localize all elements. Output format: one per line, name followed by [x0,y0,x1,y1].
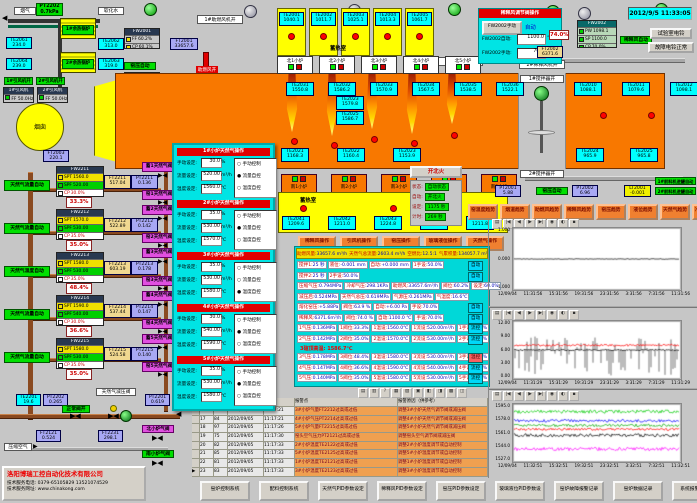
mode-label: 自动 [525,23,536,31]
junction-dot [416,33,423,40]
gas-ft-box: FT2212522.89 [104,218,131,232]
gas-ft-box: FT2211517.04 [104,175,131,189]
valve-icon[interactable]: ▶◀ [70,412,81,420]
junction-dot [384,33,391,40]
grid-row: 压缩气压:0.794MPa冷却气压:298.1KPa助燃风:33657.6m³/… [297,282,501,290]
south-port-valve-label: 南小炉气阀 [142,450,174,458]
crown-high-temp-alarm: 3碹顶高温: 1586.7℃ [300,345,353,352]
radio-manual-control[interactable]: ○ 手动控制 [237,161,261,167]
chart2-toolbar: ▤|◀◀▶▶|◉◐▪ [492,310,579,320]
mid-temps-col: TE20231579.8TE20251586.7 [336,96,364,125]
trend-button[interactable]: 助燃风趋势 [532,204,562,220]
temp-set-label: 温度设定: [177,186,197,192]
junction-dot [352,33,359,40]
toolbar-icon[interactable]: ▶ [525,310,535,320]
valve-icon[interactable]: ▶◀ [158,344,167,351]
gas-reducer-label: 天然气减压阀 [96,388,136,396]
toolbar-icon[interactable]: ◐ [558,310,568,320]
stirrer-shaft [540,101,543,153]
alarm-point-header: 报警点 [295,398,398,407]
unit-label: % [221,160,225,165]
bottom-temps-row2: TE2024965.9TE2025965.8 [576,148,658,162]
radio-flow-auto[interactable]: ● 流量自控 [237,225,261,231]
junction-dot [600,112,607,119]
trend-button[interactable]: 冷却气趋势 [692,204,697,220]
temp-set-label: 温度设定: [177,238,197,244]
system-nav-button[interactable]: 玻璃液位PID参数设定 [495,481,545,501]
ft2003-box: FT2003220.1 [43,150,69,162]
temp-set-label: 温度设定: [177,342,197,348]
unit-label: m³/h [221,225,232,230]
chart2-xticks: 12/09/0411:31:2915:31:2919:31:2923:31:29… [498,380,690,385]
scada-screen: ◀ 烟气 PT22020.7kPa 软化水 1#余热锅炉 2#余热锅炉 TE20… [0,0,697,503]
manual-set-label: 手动设定: [177,368,197,374]
ft2002-box: FT20026371.6 [537,46,563,58]
flow-set-label: 流量设定: [177,381,197,387]
south-ports-row: 南1小炉南2小炉南3小炉南4小炉南5小炉 [281,174,517,193]
gas-valve-position: 35.0% [66,369,92,380]
valve-actuator-icon [110,405,117,412]
temp-set-input[interactable]: 1560.0 [201,184,222,194]
fw2001-top-panel: FW2001 FF 60.2%CP 60.1% [124,28,160,49]
mode-chip[interactable]: 自动 [468,303,483,313]
fan1-panel: 1#引风机 FF 50.0Hz [3,87,34,103]
flow-set-input[interactable]: 530.00 [201,223,222,233]
mode-chip[interactable]: 流控 [468,335,483,345]
north-ports-row: 北1小炉北2小炉北3小炉北4小炉北5小炉 [277,56,481,74]
grid-row: 1气压:0.136MPa1阀位:33.3%1温设:1560.0℃1流设:520.… [297,324,489,332]
manual-set-label: 手动设定: [177,160,197,166]
unit-label: m³/h [221,381,232,386]
trend-button[interactable]: 窑压趋势 [596,204,626,220]
flow-set-label: 流量设定: [177,277,197,283]
chart1-xticks: 12/09/0411:31:5615:31:5619:31:5623:31:56… [498,291,690,296]
te2063-box: TE2063319.0 [98,58,124,70]
temp-set-input[interactable]: 1590.0 [201,340,222,350]
flow-set-input[interactable]: 530.00 [201,379,222,389]
junction-dot [371,136,378,143]
temp-set-input[interactable]: 1580.0 [201,288,222,298]
unit-label: % [221,212,225,217]
system-nav-button[interactable]: 稀释风PID参数设定 [377,481,427,501]
alarm-row[interactable]: 2082 2012/09/0511:17:33 2#小炉温度TE2122过高或过… [192,442,488,451]
stirrer-motor-icon [534,86,549,101]
manual-set-input[interactable]: 35.0 [201,262,222,272]
gas-pt-box: PT22130.178 [131,261,158,275]
radio-temp-auto[interactable]: ● 温度自控 [237,289,261,295]
toolbar-icon[interactable]: ▧ [402,388,412,398]
mode-chip[interactable]: 流控 [468,324,483,334]
popup-section-title: 3#小炉天然气操作 [177,252,270,260]
chart2-yticks: 12.009.006.003.000.00 [486,320,510,378]
trend-button[interactable]: 烟道趋势 [500,204,530,220]
dilution-valve-position: 74.0% [549,30,569,40]
auto-sp-input[interactable]: 1100.0 [517,34,546,45]
ft2001-box: FT200133657.6 [170,38,198,50]
grid-row: 2气压:0.142MPa2阀位:35.0%2温设:1570.0℃2流设:530.… [297,335,489,343]
fan1-on-label: 1#引风机开 [4,77,33,85]
toolbar-icon[interactable]: ▩ [446,388,456,398]
alarm-row[interactable]: 2281 2012/09/0511:17:33 1#小炉温度TE2121过高或过… [192,459,488,468]
gas-fw-panel: FW2213 SPT 1580.0 SPF 530.00 CP 35.0% [56,252,104,283]
regen-gas-valve-label: 蓄5天然气阀 [142,334,176,344]
unit-label: % [221,264,225,269]
valve-icon[interactable]: ▶◀ [152,434,163,442]
unit-label: ℃ [221,238,226,243]
crown-temps-row: TE20311550.8TE20321586.2TE20331570.9TE20… [286,82,524,96]
system-nav-button[interactable]: 窑炉控制系统 [200,481,250,501]
te2201-box: TE220119.6 [16,394,41,406]
toolbar-icon[interactable]: ▣ [413,388,423,398]
alarm-table: 1698 2012/09/0511:17:21 3#小炉气量FT2212过高或过… [192,407,488,477]
pt2202-box: PT22020.7kPa [36,3,63,16]
radio-flow-auto[interactable]: ○ 流量自控 [237,277,261,283]
alarm-toolbar: ▤▥?▦▧▣◧◨▩◫ [358,388,467,398]
regen-label: 蓄热室 [330,44,346,52]
divider [489,306,697,308]
unit-label: ℃ [221,290,226,295]
gas-valve-position: 35.0% [66,240,92,251]
gas-fw-panel: FW2214 SPT 1590.0 SPF 540.00 CP 30.0% [56,295,104,326]
ft2231-box: FT2231298.1 [98,430,123,442]
valve-icon[interactable]: ▶◀ [108,412,119,420]
unit-label: ℃ [221,342,226,347]
toolbar-icon[interactable]: ◀ [514,310,524,320]
gas-fw-panel: FW2212 SPT 1570.0 SPF 530.00 CP 35.0% [56,209,104,240]
manual-set-input[interactable]: 30.0 [201,314,222,324]
manual-set-input[interactable]: 35.0 [201,366,222,376]
fan-icon [578,7,591,20]
company-name: 洛阳博瑞工控自动化技术有限公司 [7,469,141,478]
grid-row: 稀释风:6371.6m³/h阀位:74.0 %自动:1100.0 ℃手设:70.… [297,314,444,322]
manual-sp-label: FW2002手动: [482,50,512,56]
gas-valve-position: 36.6% [66,326,92,337]
auto-sp-label: FW2002自动: [482,36,512,42]
stirrer-disc [528,130,555,135]
panel-title: 稀释风调节阀操作 [479,9,561,18]
popup-section: 3#小炉天然气操作 手动设定: 35.0 % 流量设定: 530.00 m³/h… [174,251,273,303]
radio-flow-auto[interactable]: ● 流量自控 [237,329,261,335]
fan-icon [244,5,257,18]
manual-set-label: 手动设定: [177,264,197,270]
north-port-valve-label: 北小炉气阀 [142,425,174,433]
manual-set-input[interactable]: 35.0 [201,210,222,220]
fire-status-panel: 状态:自动状态自动:开北火设定:1175 秒计时:269 秒 [410,180,462,226]
alarm-row[interactable]: 1784 2012/09/0511:17:21 4#小炉气压PT2214过高或过… [192,416,488,425]
company-web: 技术服务网址: www.chinakong.com [7,486,141,492]
valve-icon[interactable]: ▶◀ [158,172,167,179]
regen-gas-valve-label: 蓄2天然气阀 [142,205,176,215]
gas-valve-position: 48.4% [66,283,92,294]
grid-row: 4气压:0.147MPa4阀位:36.6%4温设:1590.0℃4流设:540.… [297,364,489,372]
grid-row: 搅拌1:25 秒液位:-0.001 mm自动:+0.000 mm1手设:50.0… [297,261,444,269]
junction-dot [300,205,307,212]
radio-temp-auto[interactable]: ○ 温度自控 [237,341,261,347]
toolbar-icon[interactable]: ◧ [424,388,434,398]
pt2002-box: PT20026.96 [572,185,598,197]
alarm-row[interactable]: 1897 2012/09/0511:17:26 5#小炉气量FT2215过高或过… [192,424,488,433]
radio-flow-auto[interactable]: ● 流量自控 [237,173,261,179]
gas-auto-label: 天然气流量自动 [4,352,50,363]
radio-flow-auto[interactable]: ● 流量自控 [237,381,261,387]
toolbar-icon[interactable]: |◀ [503,391,513,401]
grid-row: 熔化窑压:+5.88Pa阀位:63.9 %自动:+6.00 Pa手设:70.0% [297,303,439,311]
gas-loops: 天然气流量自动 FW2211 SPT 1560.0 SPF 520.00 CP … [0,166,176,381]
divider [489,388,697,390]
junction-dot [288,33,295,40]
alarm-row[interactable]: ▶2383 2012/09/0511:17:33 3#小炉温度TE2123过高或… [192,468,488,477]
radio-manual-control[interactable]: ○ 手动控制 [237,213,261,219]
manual-set-label: 手动设定: [177,212,197,218]
chimney: 烟囱 [16,103,64,151]
gas-auto-label: 天然气流量自动 [4,309,50,320]
junction-dot [411,140,418,147]
te2061-box: TE2061234.0 [6,37,32,49]
lab-bell-button[interactable]: 试验室电铃 [650,28,692,39]
manual-set-input[interactable]: 30.0 [201,158,222,168]
gas-auto-label: 天然气流量自动 [4,223,50,234]
kiln-auto-label: 窑压自动 [124,62,156,70]
toolbar-icon[interactable]: ◉ [547,391,557,401]
arrow-left-icon: ◀ [176,410,181,418]
trend-button[interactable]: 稀释风趋势 [564,204,594,220]
fw2002-panel: FW2002 PW 1098.1SP 1100.0CP 70.0% [577,20,617,48]
toolbar-icon[interactable]: ▶| [536,310,546,320]
regen-gas-valve-label: 蓄3天然气阀 [142,248,176,258]
toolbar-icon[interactable]: ◀ [514,391,524,401]
manual-set-label: 手动设定: [177,316,197,322]
gas-pt-box: PT22110.136 [131,175,158,189]
junction-dot [451,132,458,139]
gas-auto-label: 天然气流量自动 [4,180,50,191]
fault-bell-button[interactable]: 故障电铃正常 [648,42,694,53]
gas-fw-panel: FW2211 SPT 1560.0 SPF 520.00 CP 30.0% [56,166,104,197]
toolbar-icon[interactable]: ▤ [492,310,502,320]
toolbar-icon[interactable]: ▪ [569,310,579,320]
junction-dot [331,142,338,149]
radio-manual-control[interactable]: ○ 手动控制 [237,369,261,375]
compressed-air-label: 压缩空气 [4,443,32,451]
pressure-trend-chart[interactable] [512,320,682,380]
toolbar-icon[interactable]: ▤ [492,391,502,401]
grid-row: 5气压:0.140MPa5阀位:35.0%5温设:1580.0℃5流设:530.… [297,374,489,382]
fire-north-button[interactable]: 开北火 [410,166,462,178]
bottom-temps-row: TE20211168.3TE20221160.4TE20231153.9 [281,148,421,162]
arrow-right-icon: ▶ [33,443,38,450]
popup-section-title: 1#小炉天然气操作 [177,148,270,156]
grid-row: 减压后:0.524MPa天然气总压:0.619MPa气源压:0.261MPa气温… [297,293,469,301]
mode-chip[interactable]: 自动 [468,272,483,282]
system-nav-button[interactable]: 系统报警值设定 [672,481,697,501]
alarm-row[interactable]: 2185 2012/09/0511:17:33 5#小炉温度TE2125过高或过… [192,450,488,459]
flow-set-input[interactable]: 520.00 [201,171,222,181]
temp-set-label: 温度设定: [177,290,197,296]
unit-label: ℃ [221,186,226,191]
soft-water-label: 软化水 [98,7,124,15]
toolbar-icon[interactable]: ▥ [369,388,379,398]
gas-ft-box: FT2214537.44 [104,304,131,318]
system-nav-button[interactable]: 窑炉故障报警记录 [554,481,604,501]
arrow-left-icon: ◀ [2,14,7,22]
lt2001-box: LT2001-0.001 [624,185,651,197]
fan2-panel: 2#引风机 FF 50.0Hz [37,87,68,103]
temperature-trend-chart[interactable] [512,403,682,463]
radio-temp-auto[interactable]: ○ 温度自控 [237,185,261,191]
popup-section: 5#小炉天然气操作 手动设定: 35.0 % 流量设定: 530.00 m³/h… [174,355,273,407]
trend-button[interactable]: 天然气趋势 [660,204,690,220]
trend-button[interactable]: 窑温度趋势 [468,204,498,220]
junction-dot [320,33,327,40]
junction-dot [291,138,298,145]
grid-row: 3气压:0.178MPa3阀位:48.4%3温设:1580.0℃3流设:530.… [297,353,489,361]
flow-set-label: 流量设定: [177,173,197,179]
boiler-2: 2#余热锅炉 [60,52,96,73]
unit-label: m³/h [221,277,232,282]
popup-section-title: 5#小炉天然气操作 [177,356,270,364]
mode-chip[interactable]: 自动 [468,261,483,271]
unit-label: % [221,316,225,321]
totals-banner: 助燃风量:33657.6 m³/h天然气总流量:2603.4 m³/h空燃比:1… [296,248,488,259]
chart3-xticks: 12/09/0411:32:5115:32:5119:32:5123:32:51… [498,463,690,468]
toolbar-icon[interactable]: ▶| [536,391,546,401]
popup-section: 2#小炉天然气操作 手动设定: 35.0 % 流量设定: 530.00 m³/h… [174,199,273,251]
temp-set-label: 温度设定: [177,394,197,400]
south-regen-label: 蓄热室 [300,196,316,204]
toolbar-icon[interactable]: ◉ [547,310,557,320]
alarm-row[interactable]: 1975 2012/09/0511:17:30 窑头空气压力PT2121过高或过… [192,433,488,442]
right-temps-row: TE20101088.1TE20111079.6TE20121098.1 [574,82,697,96]
feeder2-auto-label: 2#前料机进罐自动 [655,187,696,195]
system-nav-button[interactable]: 配料控制系统 [259,481,309,501]
motor-icon [120,410,132,422]
popup-section-title: 4#小炉天然气操作 [177,304,270,312]
fan-icon [448,3,461,16]
radio-manual-control[interactable]: ○ 手动控制 [237,265,261,271]
fw2002-manual-button[interactable]: FW2002手动 [482,21,522,35]
gas-fw-panel: FW2215 SPT 1580.0 SPF 530.00 CP 35.0% [56,338,104,369]
te2062-box: TE2062313.0 [98,38,124,50]
feeder1-auto-label: 1#前料机进罐自动 [655,177,696,185]
datetime-display: 2012/9/5 11:33:05 [628,7,692,20]
radio-temp-auto[interactable]: ○ 温度自控 [237,393,261,399]
valve-icon[interactable]: ▶◀ [158,301,167,308]
system-nav-button[interactable]: 窑炉数据记录 [613,481,663,501]
toolbar-icon[interactable]: ▶ [525,391,535,401]
chart1-yticks: 1.0000.000-1.000 [486,227,510,289]
comb-fan-on-label: 1#助燃风机开 [197,15,243,24]
temp-set-input[interactable]: 1580.0 [201,392,222,402]
pt2001-box: PT20015.88 [495,185,521,197]
mixer1-on-label: 1#搅拌器开 [520,75,564,83]
flow-set-label: 流量设定: [177,225,197,231]
toolbar-icon[interactable]: ◨ [435,388,445,398]
fan2-on-label: 2#引风机开 [36,77,65,85]
ft2121-box: FT21210.524 [36,430,61,442]
unit-label: m³/h [221,173,232,178]
valve-icon[interactable]: ▶◀ [158,371,167,378]
junction-dot [390,205,397,212]
valve-icon[interactable]: ▶◀ [158,258,167,265]
toolbar-icon[interactable]: ◐ [558,391,568,401]
toolbar-icon[interactable]: ◫ [457,388,467,398]
unit-label: % [221,368,225,373]
radio-temp-auto[interactable]: ○ 温度自控 [237,237,261,243]
toolbar-icon[interactable]: ? [380,388,390,398]
gas-operation-popup: 1#小炉天然气操作 手动设定: 30.0 % 流量设定: 520.00 m³/h… [172,143,275,411]
unit-label: ℃ [221,394,226,399]
trend-button[interactable]: 液位趋势 [628,204,658,220]
mixer2-on-label: 2#搅拌器开 [520,170,564,178]
toolbar-icon[interactable]: |◀ [503,310,513,320]
chart3-toolbar: ▤|◀◀▶▶|◉◐▪ [492,391,579,401]
temp-set-input[interactable]: 1570.0 [201,236,222,246]
flow-set-input[interactable]: 540.00 [201,327,222,337]
boiler-1: 1#余热锅炉 [60,18,96,39]
popup-section: 1#小炉天然气操作 手动设定: 30.0 % 流量设定: 520.00 m³/h… [174,147,273,199]
te2064-box: TE2064239.0 [6,58,32,70]
gas-pt-box: PT22140.147 [131,304,158,318]
regen-gas-valve-label: 蓄4天然气阀 [142,291,176,301]
south-regen-temps: TE20411209.6TE20421211.0TE20431224.8TE20… [282,216,494,230]
radio-manual-control[interactable]: ○ 手动控制 [237,317,261,323]
gas-main-pipe [0,414,180,419]
gas-valve-position: 33.3% [66,197,92,208]
unit-label: m³/h [221,329,232,334]
popup-section: 4#小炉天然气操作 手动设定: 30.0 % 流量设定: 540.00 m³/h… [174,303,273,355]
flue-gas-label: 烟气 [14,7,36,15]
regen-gas-valve-label: 蓄1天然气阀 [142,162,176,172]
fan-icon [144,3,157,16]
mode-chip[interactable]: 自动 [468,314,483,324]
flow-set-label: 流量设定: [177,329,197,335]
company-info: 洛阳博瑞工控自动化技术有限公司 技术服务电话: 0379-65105829 13… [2,466,146,501]
toolbar-icon[interactable]: ▦ [391,388,401,398]
popup-section-title: 2#小炉天然气操作 [177,200,270,208]
toolbar-icon[interactable]: ▪ [569,391,579,401]
junction-dot [648,112,655,119]
gas-ft-box: FT2215524.58 [104,347,131,361]
system-nav-button[interactable]: 天然气PID参数设定 [318,481,368,501]
valve-icon[interactable]: ▶◀ [152,459,163,467]
grid-row: 搅拌2:25 秒2手设:50.0% [297,272,360,280]
north-regen-row: TE20011040.1 TE20021011.7 TE20031025.1 T… [277,8,434,56]
gas-ft-box: FT2213603.19 [104,261,131,275]
system-nav-button[interactable]: 窑压PID参数设定 [436,481,486,501]
gas-pt-box: PT22150.140 [131,347,158,361]
bottom-buttons-row: 窑炉控制系统配料控制系统天然气PID参数设定稀释风PID参数设定窑压PID参数设… [200,481,697,501]
mode-chip[interactable]: 温控 [468,353,483,363]
toolbar-icon[interactable]: ▤ [358,388,368,398]
mode-chip[interactable]: 流控 [468,364,483,374]
gas-auto-label: 天然气温度自动 [4,266,50,277]
trend-buttons-row: 窑温度趋势烟道趋势助燃风趋势稀释风趋势窑压趋势液位趋势天然气趋势冷却气趋势 [468,204,697,220]
valve-icon[interactable]: ▶◀ [158,215,167,222]
flow-set-input[interactable]: 530.00 [201,275,222,285]
kiln-auto-label2: 窑压自动 [536,187,568,195]
mode-chip[interactable]: 流控 [468,374,483,384]
alarm-reason-header: 报警原因（供参考） [398,398,488,407]
gas-pt-box: PT22120.142 [131,218,158,232]
level-trend-chart[interactable] [512,227,682,291]
pt2201-box: PT22010.619 [145,394,170,406]
